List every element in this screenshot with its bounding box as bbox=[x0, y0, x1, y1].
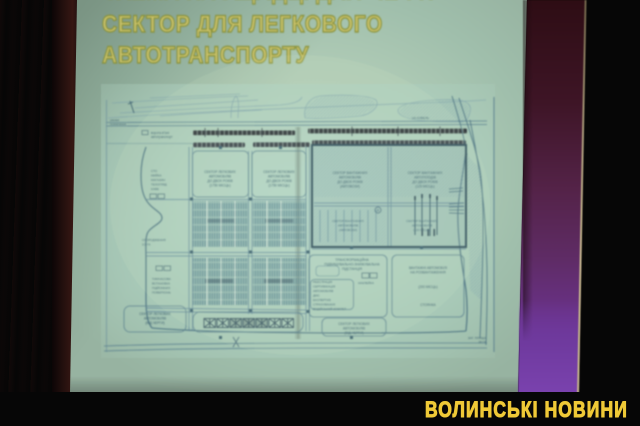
svg-text:АВТОМОБІЛІВ: АВТОМОБІЛІВ bbox=[144, 317, 167, 321]
svg-text:СЕКТОР ЛЕГКОВИХ: СЕКТОР ЛЕГКОВИХ bbox=[139, 312, 171, 316]
svg-text:(ВІД ЧЕРГИ): (ВІД ЧЕРГИ) bbox=[145, 321, 164, 325]
svg-text:позначення: позначення bbox=[110, 122, 126, 126]
svg-text:28 ГА: 28 ГА bbox=[478, 340, 486, 344]
